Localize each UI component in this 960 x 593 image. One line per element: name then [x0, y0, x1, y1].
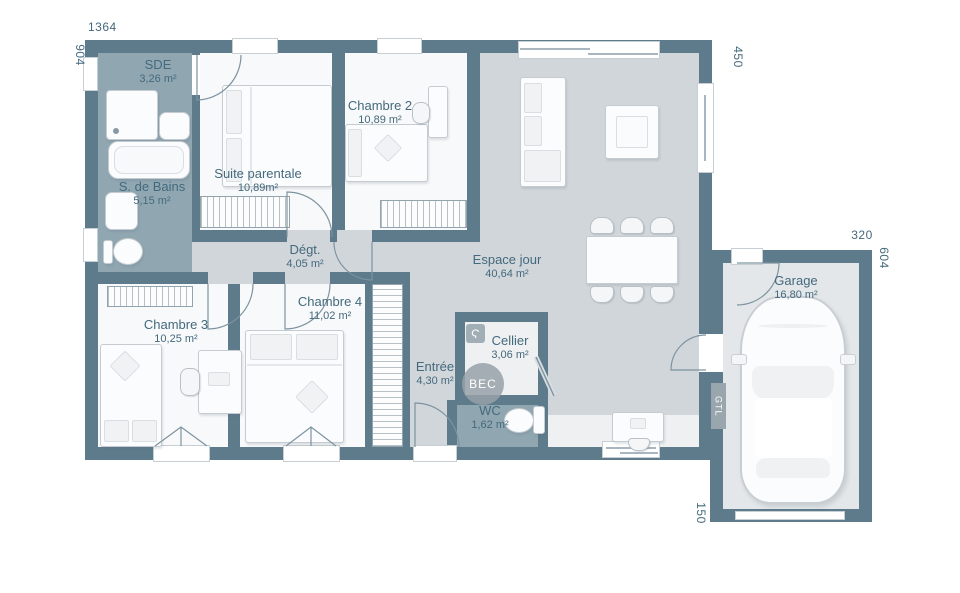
room-name: SDE [139, 57, 176, 73]
room-name: Cellier [491, 333, 528, 349]
room-label-s-de-bains: S. de Bains 5,15 m² [119, 179, 186, 208]
room-name: WC [471, 403, 508, 419]
door-arc-garage-service [737, 263, 779, 305]
dim-left: 904 [73, 33, 87, 77]
room-label-wc: WC 1,62 m² [471, 403, 508, 432]
room-area: 10,89m² [214, 182, 301, 195]
room-name: Chambre 4 [298, 294, 362, 310]
room-area: 10,89 m² [348, 114, 412, 127]
room-label-garage: Garage 16,80 m² [774, 273, 817, 302]
door-arc-chambre2 [334, 242, 372, 280]
room-label-degt: Dégt. 4,05 m² [286, 242, 323, 271]
room-label-chambre4: Chambre 4 11,02 m² [298, 294, 362, 323]
room-label-entree: Entrée 4,30 m² [416, 359, 454, 388]
room-area: 10,25 m² [144, 333, 208, 346]
door-arc-sde [197, 55, 241, 100]
door-arc-garage-house [671, 335, 706, 370]
dim-garage-right: 604 [877, 236, 891, 280]
room-area: 3,06 m² [491, 349, 528, 362]
room-label-chambre3: Chambre 3 10,25 m² [144, 317, 208, 346]
room-name: Chambre 3 [144, 317, 208, 333]
door-arc-front [415, 403, 459, 447]
room-name: S. de Bains [119, 179, 186, 195]
dim-garage-bottom: 150 [694, 491, 708, 535]
room-area: 16,80 m² [774, 289, 817, 302]
room-label-suite-parentale: Suite parentale 10,89m² [214, 166, 301, 195]
room-label-sde: SDE 3,26 m² [139, 57, 176, 86]
door-leaf-cellier [536, 357, 554, 396]
room-label-cellier: Cellier 3,06 m² [491, 333, 528, 362]
dim-top: 1364 [88, 20, 132, 34]
room-area: 40,64 m² [473, 268, 542, 281]
door-arc-chambre3 [208, 284, 253, 329]
room-area: 4,30 m² [416, 375, 454, 388]
floor-plan-canvas: Ϛ BEC GTL SDE 3,26 [0, 0, 960, 593]
room-label-espace-jour: Espace jour 40,64 m² [473, 252, 542, 281]
room-name: Entrée [416, 359, 454, 375]
room-area: 1,62 m² [471, 419, 508, 432]
room-area: 3,26 m² [139, 73, 176, 86]
room-area: 4,05 m² [286, 258, 323, 271]
door-arc-suite [287, 192, 332, 237]
dim-main-right: 450 [731, 35, 745, 79]
room-name: Garage [774, 273, 817, 289]
room-area: 11,02 m² [298, 310, 362, 323]
room-area: 5,15 m² [119, 195, 186, 208]
room-name: Chambre 2 [348, 98, 412, 114]
room-name: Suite parentale [214, 166, 301, 182]
room-label-chambre2: Chambre 2 10,89 m² [348, 98, 412, 127]
room-name: Espace jour [473, 252, 542, 268]
room-name: Dégt. [286, 242, 323, 258]
